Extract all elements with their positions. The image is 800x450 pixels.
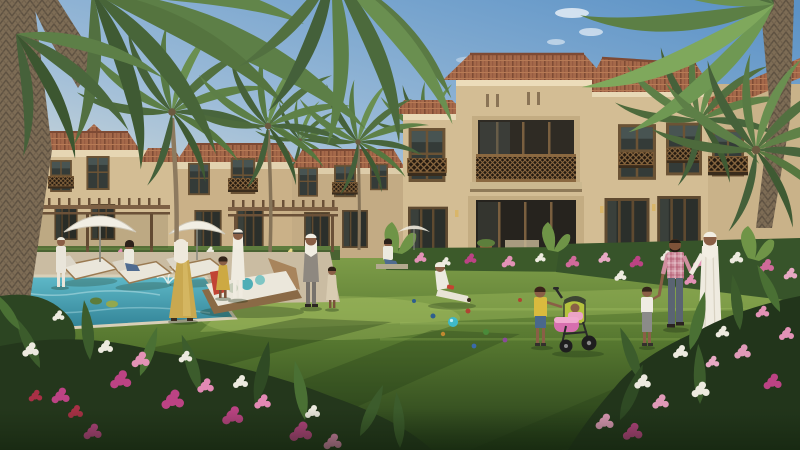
juliet-balcony: [408, 158, 447, 176]
villa-door: [342, 210, 368, 248]
villa-window: [86, 156, 109, 190]
vignette: [0, 408, 800, 450]
villa-community-render: [0, 0, 800, 450]
juliet-balcony: [48, 176, 74, 188]
baby-head: [571, 304, 580, 313]
juliet-balcony: [619, 152, 653, 168]
villa-window: [298, 167, 318, 196]
villa-window: [188, 163, 210, 195]
central-balcony: [470, 116, 582, 192]
scene-canvas: [0, 0, 800, 450]
